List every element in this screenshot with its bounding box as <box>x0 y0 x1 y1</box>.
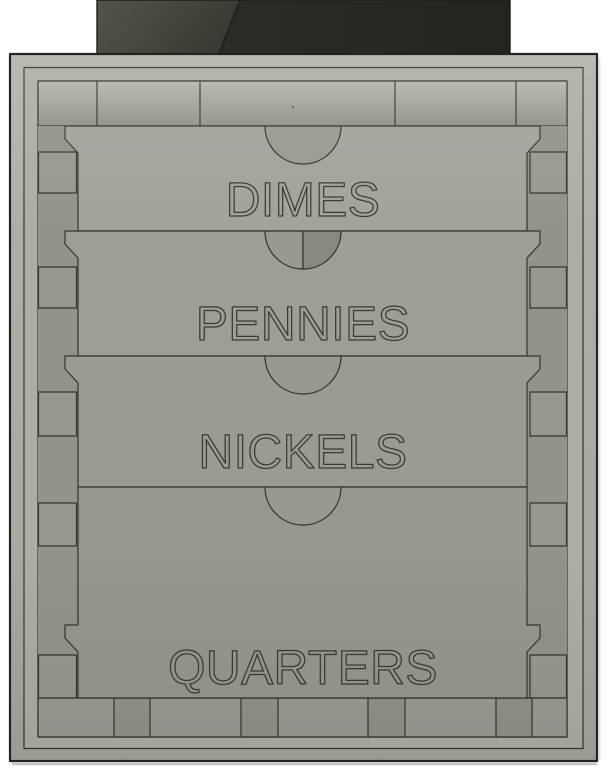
cad-canvas: DIMES PENNIES NICKELS QUARTERS <box>0 0 609 783</box>
lighting-overlay <box>11 55 596 760</box>
hopper-right-face[interactable] <box>219 0 510 54</box>
hopper-left-face[interactable] <box>97 0 240 54</box>
cad-viewport[interactable]: DIMES PENNIES NICKELS QUARTERS <box>0 0 609 783</box>
hopper-body[interactable] <box>97 0 510 54</box>
